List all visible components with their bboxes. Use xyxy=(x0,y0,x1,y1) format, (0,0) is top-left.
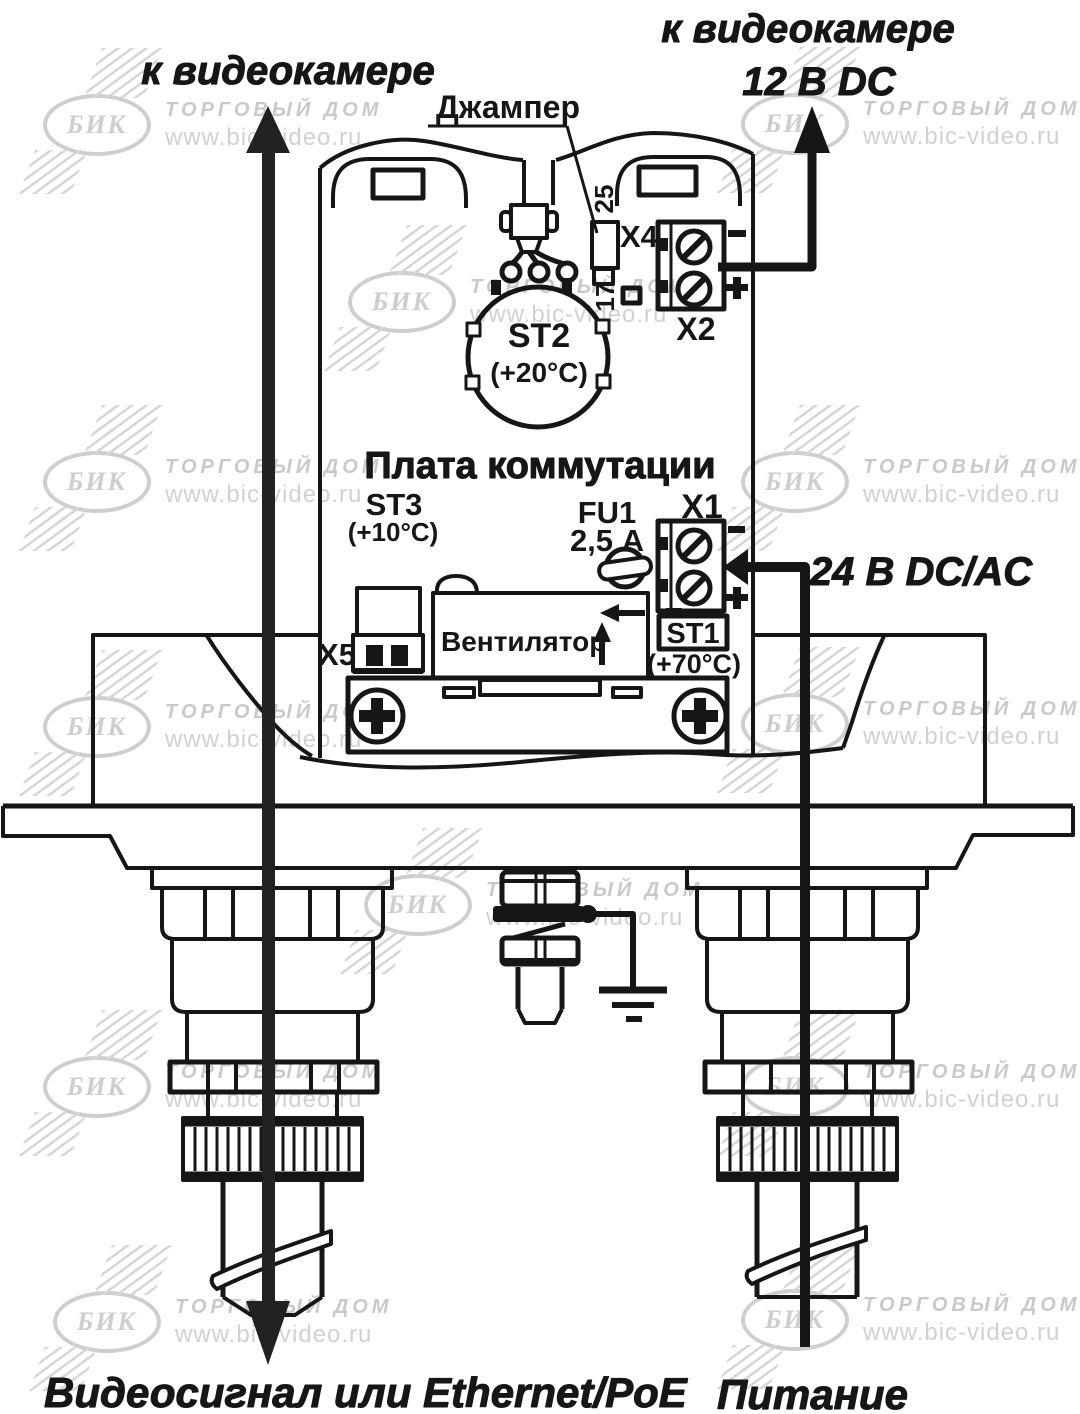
st2-thermostat: ST2 (+20°C) xyxy=(466,287,610,427)
arrow-down-icon xyxy=(246,1301,290,1365)
ground-bolt xyxy=(493,872,667,1023)
board-title: Плата коммутации xyxy=(364,445,715,487)
silkscreen-25: 25 xyxy=(589,185,619,214)
earth-ground-icon xyxy=(588,914,667,1019)
st1-thermostat: ST1 (+70°C) xyxy=(647,616,741,679)
caption-12v-dc: 12 В DC xyxy=(742,60,896,104)
silkscreen-17: 17 xyxy=(590,283,620,312)
phillips-screw-icon xyxy=(351,690,403,742)
st2-label: ST2 xyxy=(508,317,570,355)
st3-temp: (+10°C) xyxy=(348,517,439,547)
arrow-up-icon xyxy=(794,106,830,153)
x1-minus-sign xyxy=(728,526,745,533)
st3-thermostat: ST3 (+10°C) X5 xyxy=(318,487,438,672)
x2-minus-sign xyxy=(728,230,746,237)
pcb-slot-right xyxy=(639,167,696,195)
st1-temp: (+70°C) xyxy=(647,649,741,679)
arrow-up-icon xyxy=(246,106,290,153)
diagram-page: БИК ТОРГОВЫЙ ДОМ www.bic-video.ru БИК ТО… xyxy=(0,0,1080,1414)
jumper-label: Джампер xyxy=(436,89,580,125)
pcb-slot-left xyxy=(373,170,423,198)
fu1-rating: 2,5 А xyxy=(570,523,644,558)
jumper-component xyxy=(501,205,576,281)
wire-12v-dc xyxy=(718,106,830,267)
x2-plus-sign xyxy=(726,277,748,299)
enclosure-outline xyxy=(93,635,985,806)
caption-24v-dcac: 24 В DC/AC xyxy=(809,550,1033,594)
x5-label: X5 xyxy=(318,637,356,672)
phillips-screw-icon xyxy=(674,690,726,742)
x4-label: X4 xyxy=(620,219,659,254)
caption-to-camera-left: к видеокамере xyxy=(141,49,434,93)
caption-video-signal: Видеосигнал или Ethernet/PoE xyxy=(44,1369,689,1414)
x2-label: X2 xyxy=(676,311,715,347)
fu1-fuse: FU1 2,5 А xyxy=(570,495,652,587)
wiring-diagram: 25 17 X4 X2 ST2 xyxy=(0,0,1080,1414)
mounting-bracket xyxy=(348,678,727,752)
x1-plus-sign xyxy=(726,587,748,609)
st2-temp: (+20°C) xyxy=(490,357,588,388)
pcb-arch-right xyxy=(617,157,740,206)
st1-label: ST1 xyxy=(666,618,719,650)
fan-label: Вентилятор xyxy=(441,626,606,657)
mounting-flange xyxy=(3,806,1073,868)
arrow-left-icon xyxy=(723,549,748,585)
fan-unit: Вентилятор xyxy=(433,576,648,678)
caption-to-camera-right: к видеокамере xyxy=(661,7,954,51)
x2-terminal: X2 xyxy=(658,222,748,347)
airflow-arrow-icon xyxy=(593,604,645,665)
caption-power: Питание xyxy=(717,1371,908,1414)
x1-terminal: X1 xyxy=(658,488,748,618)
pcb-arch-left xyxy=(333,159,466,208)
